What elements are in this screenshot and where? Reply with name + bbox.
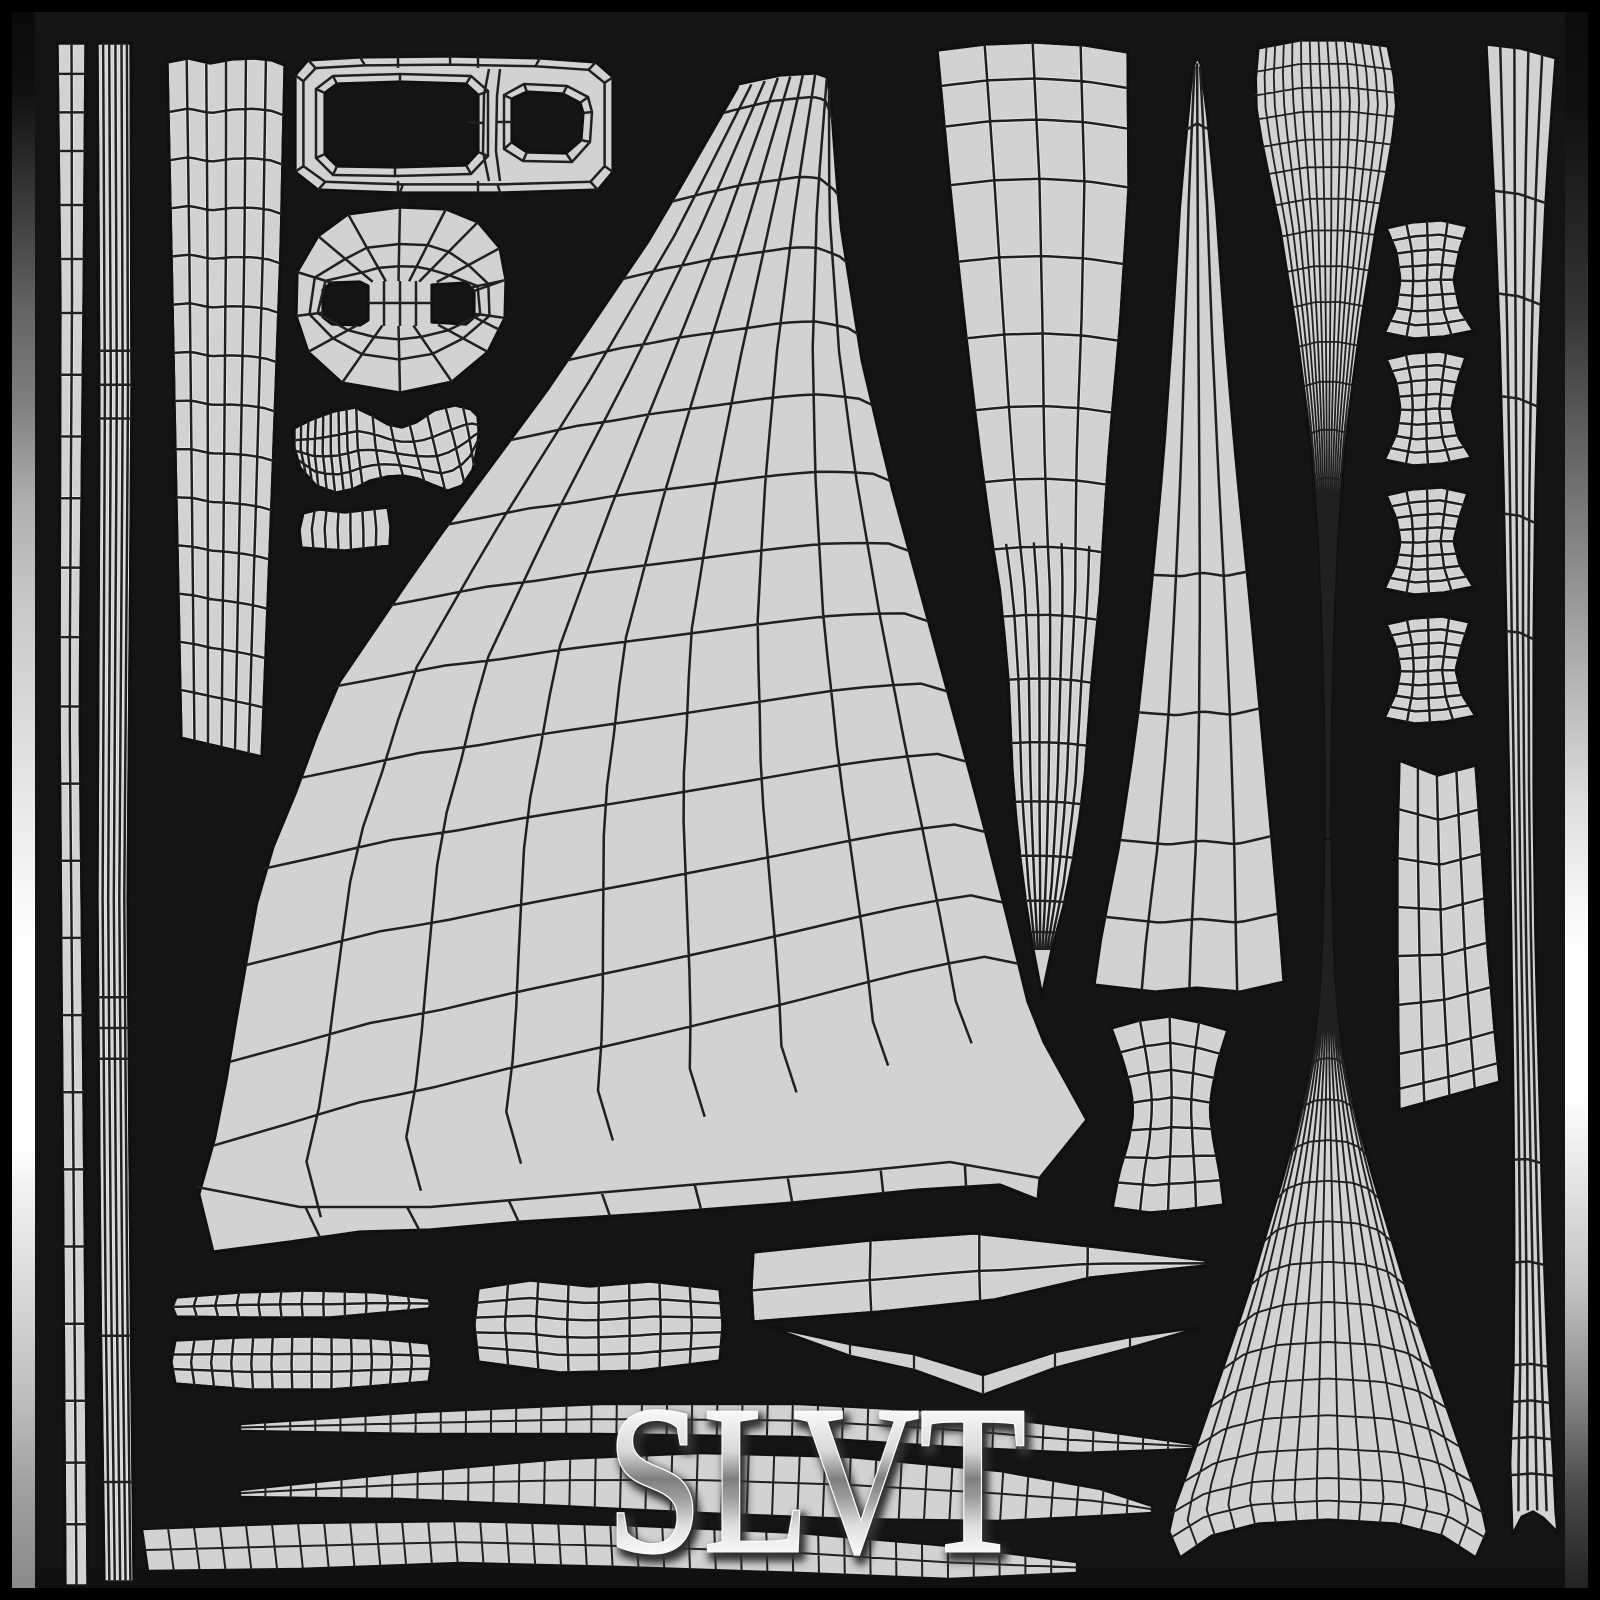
svg-text:SLVT: SLVT — [606, 1362, 1026, 1597]
